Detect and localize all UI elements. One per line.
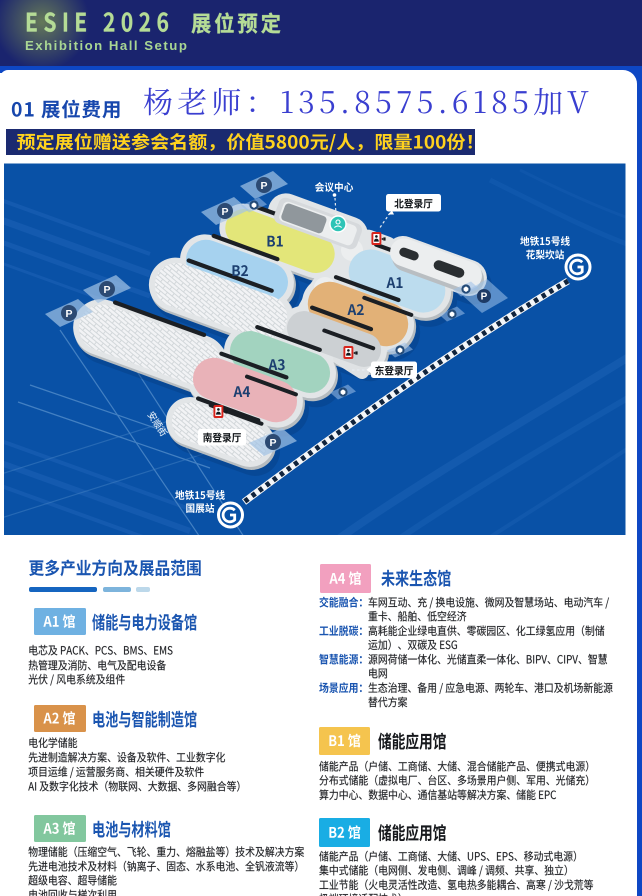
svg-text:P: P <box>221 206 228 218</box>
svg-text:P: P <box>269 437 276 449</box>
svg-text:P: P <box>65 308 72 320</box>
svg-text:P: P <box>103 284 110 296</box>
svg-text:P: P <box>260 180 267 192</box>
svg-text:P: P <box>481 292 488 303</box>
